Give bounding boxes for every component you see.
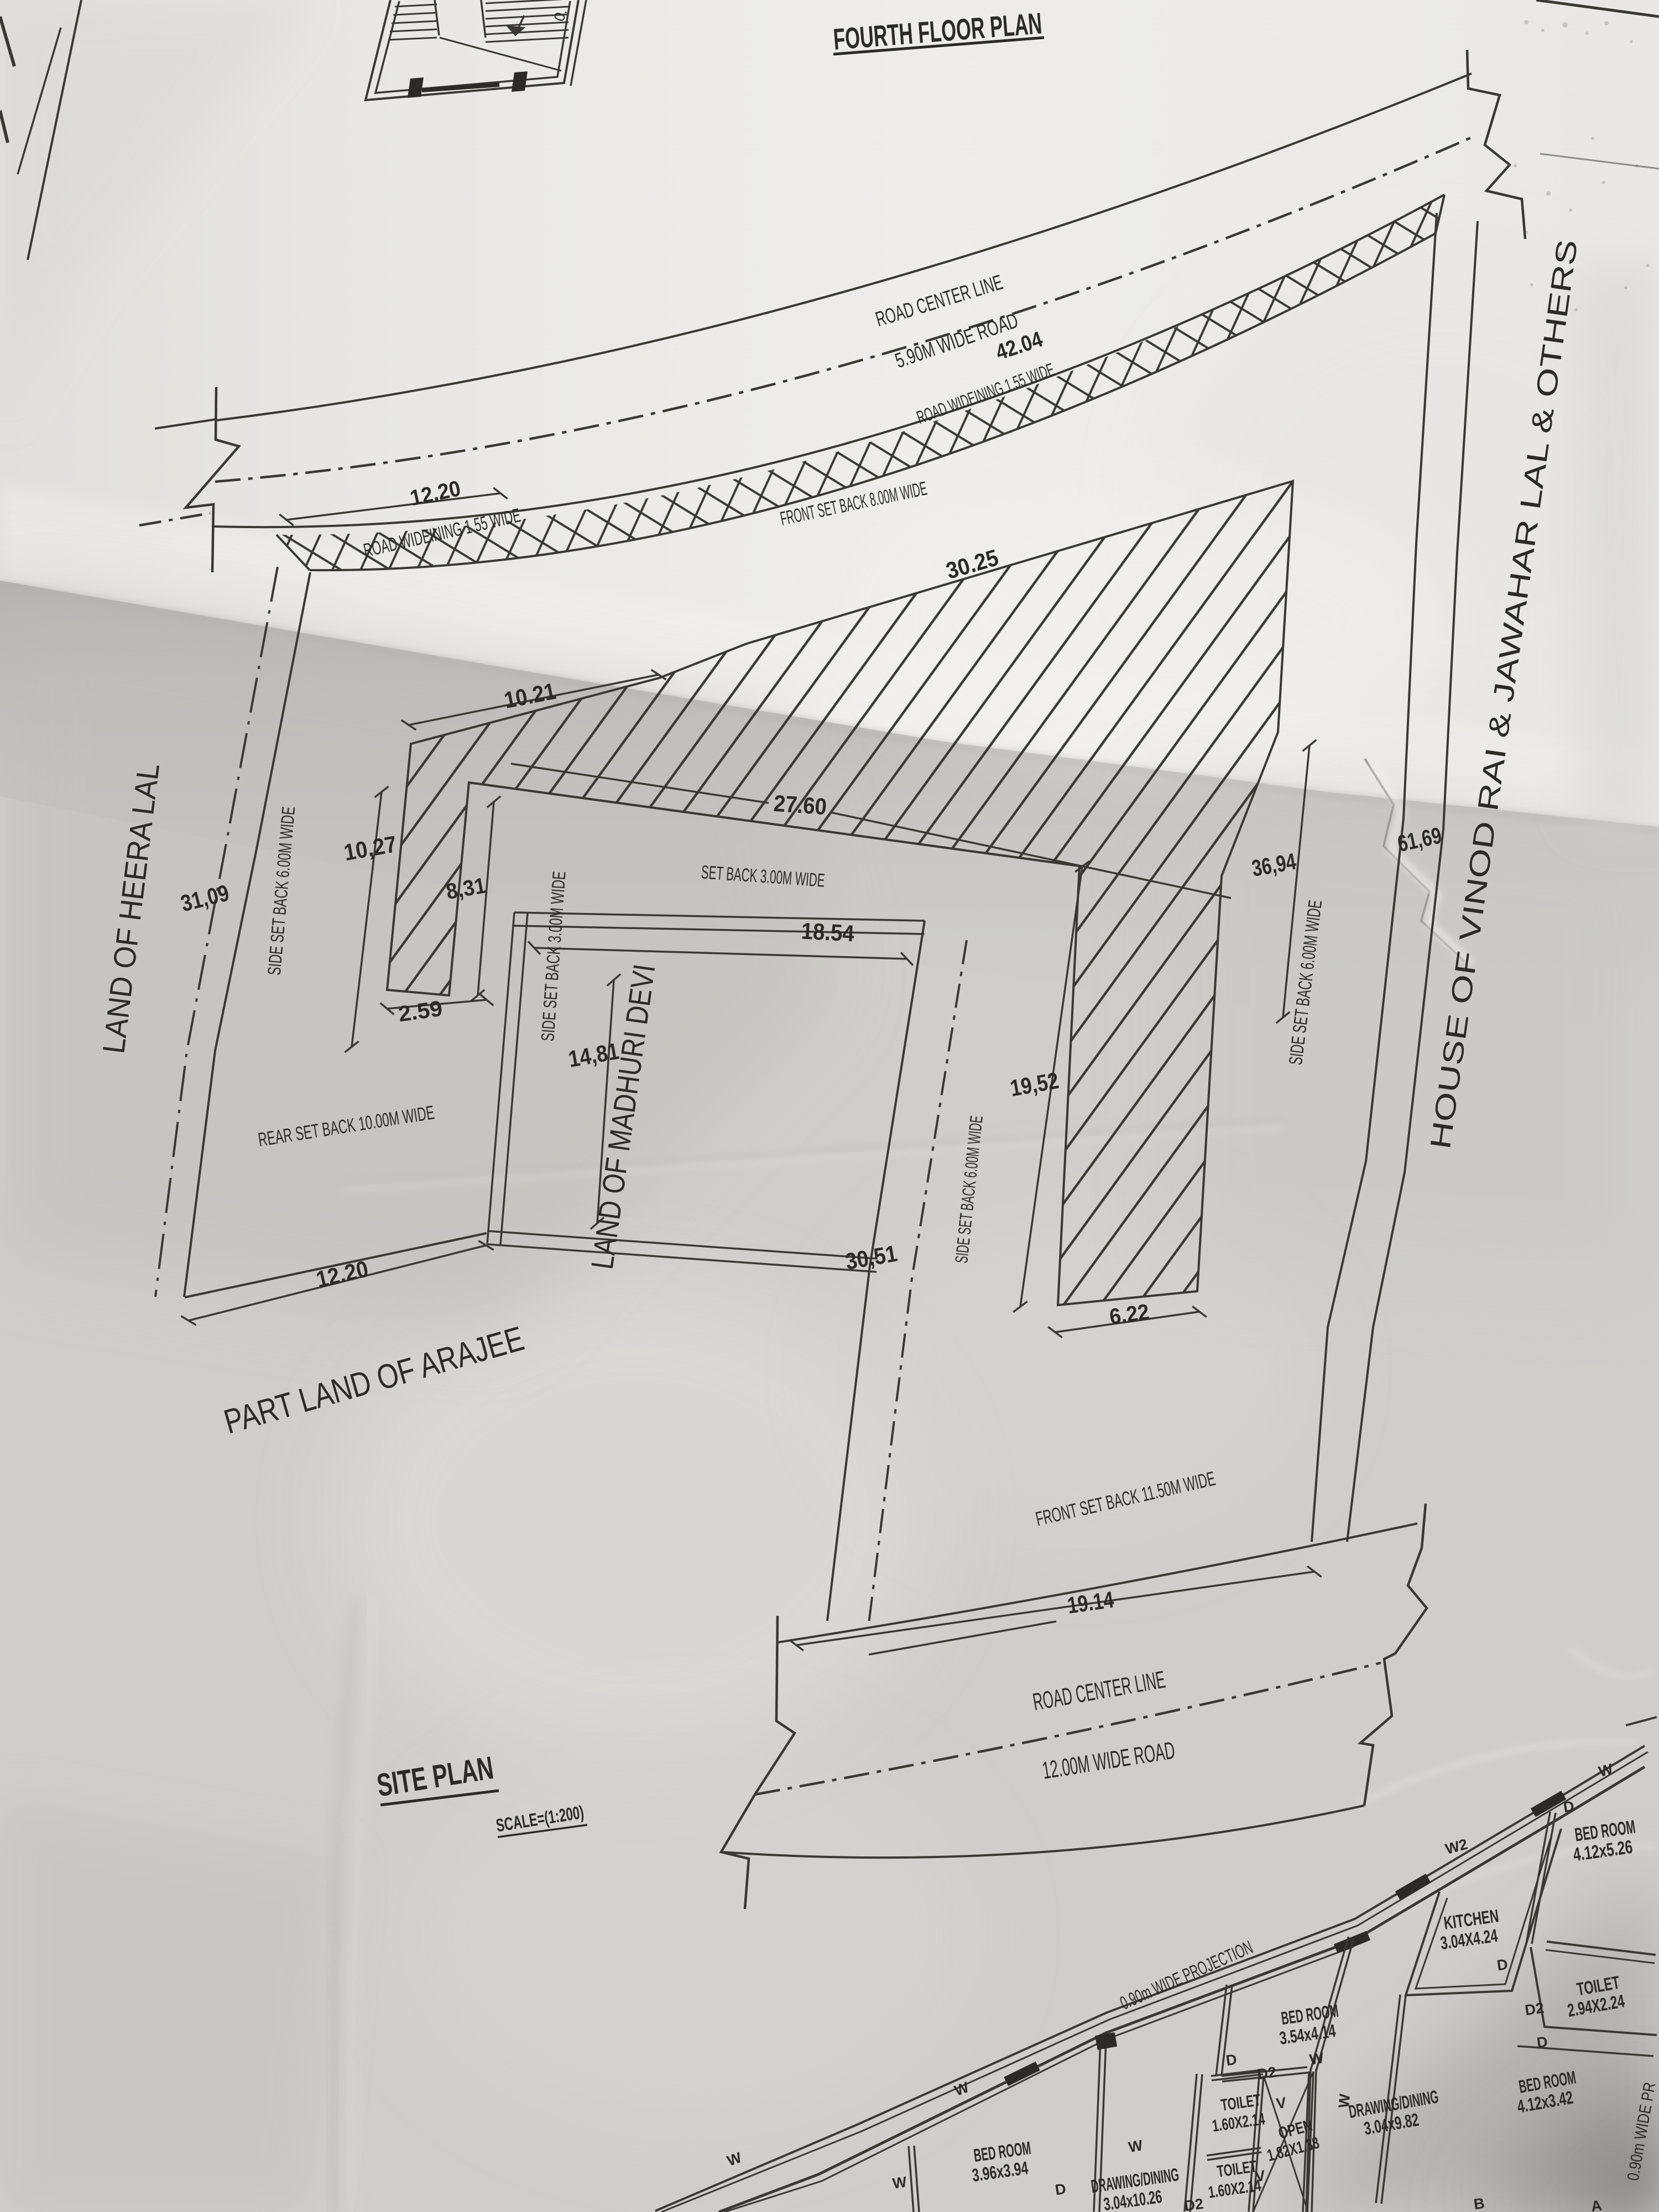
svg-text:D2: D2 xyxy=(1524,2000,1545,2019)
svg-text:B: B xyxy=(1473,2195,1485,2212)
svg-text:W: W xyxy=(1335,2093,1353,2109)
svg-text:W: W xyxy=(1308,2049,1325,2068)
svg-text:D: D xyxy=(1562,1798,1575,1815)
svg-text:27.60: 27.60 xyxy=(773,790,827,820)
svg-text:D: D xyxy=(1054,2180,1067,2198)
svg-text:D2: D2 xyxy=(1183,2195,1204,2212)
svg-text:W: W xyxy=(891,2173,908,2192)
svg-text:D: D xyxy=(1496,1956,1509,1974)
svg-text:D: D xyxy=(1225,2051,1238,2069)
svg-text:18.54: 18.54 xyxy=(801,918,855,947)
svg-text:D2: D2 xyxy=(1256,2064,1277,2083)
svg-text:D: D xyxy=(1536,2033,1548,2051)
